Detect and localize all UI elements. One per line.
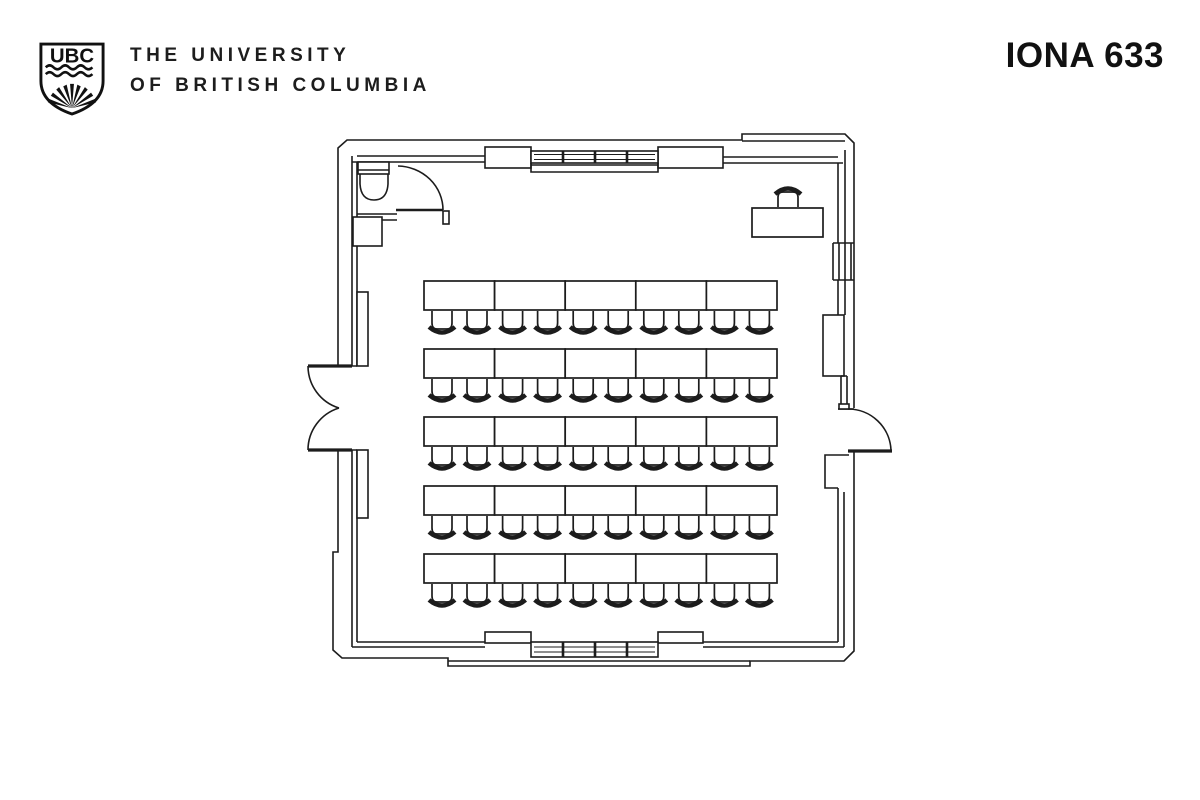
student-table — [565, 554, 636, 583]
student-chair — [503, 516, 523, 534]
student-chair — [714, 447, 734, 465]
student-table — [424, 349, 495, 378]
student-chair — [538, 516, 558, 534]
student-table — [706, 349, 777, 378]
student-table — [565, 417, 636, 446]
student-table — [495, 281, 566, 310]
furniture-layer — [424, 189, 823, 606]
toilet-fixture — [358, 162, 389, 200]
student-table — [495, 554, 566, 583]
student-table — [495, 417, 566, 446]
student-chair — [503, 311, 523, 329]
closet — [353, 217, 382, 246]
student-chair — [644, 379, 664, 397]
student-chair — [538, 584, 558, 602]
student-chair — [503, 379, 523, 397]
student-chair — [573, 584, 593, 602]
student-chair — [467, 584, 487, 602]
student-table — [495, 349, 566, 378]
right-alcove — [823, 315, 849, 409]
student-table — [424, 554, 495, 583]
student-chair — [679, 516, 699, 534]
window-right — [833, 243, 854, 280]
instructor-table — [752, 208, 823, 237]
student-chair — [538, 447, 558, 465]
student-chair — [503, 447, 523, 465]
student-table — [636, 486, 707, 515]
window-top — [485, 147, 723, 172]
door-left-double — [308, 366, 352, 450]
door-right — [825, 409, 892, 488]
student-table — [424, 281, 495, 310]
student-chair — [467, 516, 487, 534]
floor-plan-page: UBC THE UNIVERSITY OF BRITISH COLUMBIA I… — [0, 0, 1200, 800]
student-table — [565, 486, 636, 515]
student-chair — [432, 516, 452, 534]
student-chair — [749, 311, 769, 329]
student-chair — [608, 447, 628, 465]
student-chair — [679, 379, 699, 397]
student-chair — [714, 379, 734, 397]
student-table — [424, 417, 495, 446]
student-table — [636, 554, 707, 583]
student-chair — [644, 516, 664, 534]
student-chair — [538, 311, 558, 329]
student-chair — [467, 447, 487, 465]
student-table — [565, 349, 636, 378]
door-jamb-stub — [443, 211, 449, 224]
student-chair — [679, 584, 699, 602]
student-chair — [573, 379, 593, 397]
washroom-area — [357, 162, 449, 224]
student-chair — [714, 311, 734, 329]
student-table — [706, 486, 777, 515]
washroom-door — [396, 166, 443, 210]
student-table — [565, 281, 636, 310]
student-chair — [679, 311, 699, 329]
window-bottom — [485, 632, 703, 657]
student-table — [706, 417, 777, 446]
student-chair — [432, 584, 452, 602]
student-table — [706, 554, 777, 583]
student-chair — [714, 584, 734, 602]
student-table — [636, 417, 707, 446]
student-table — [706, 281, 777, 310]
student-chair — [749, 379, 769, 397]
student-chair — [608, 311, 628, 329]
student-chair — [749, 516, 769, 534]
student-chair — [467, 379, 487, 397]
student-table — [636, 281, 707, 310]
student-chair — [503, 584, 523, 602]
student-chair — [432, 379, 452, 397]
student-chair — [714, 516, 734, 534]
student-chair — [608, 516, 628, 534]
student-table — [495, 486, 566, 515]
student-chair — [644, 311, 664, 329]
student-chair — [573, 447, 593, 465]
student-chair — [608, 379, 628, 397]
student-chair — [467, 311, 487, 329]
student-chair — [573, 516, 593, 534]
student-chair — [679, 447, 699, 465]
student-chair — [608, 584, 628, 602]
student-chair — [749, 447, 769, 465]
student-chair — [432, 311, 452, 329]
student-table — [424, 486, 495, 515]
student-chair — [749, 584, 769, 602]
student-chair — [573, 311, 593, 329]
instructor-chair — [778, 192, 798, 207]
student-chair — [432, 447, 452, 465]
student-table — [636, 349, 707, 378]
student-chair — [644, 584, 664, 602]
student-chair — [644, 447, 664, 465]
student-chair — [538, 379, 558, 397]
floor-plan-drawing — [0, 0, 1200, 800]
